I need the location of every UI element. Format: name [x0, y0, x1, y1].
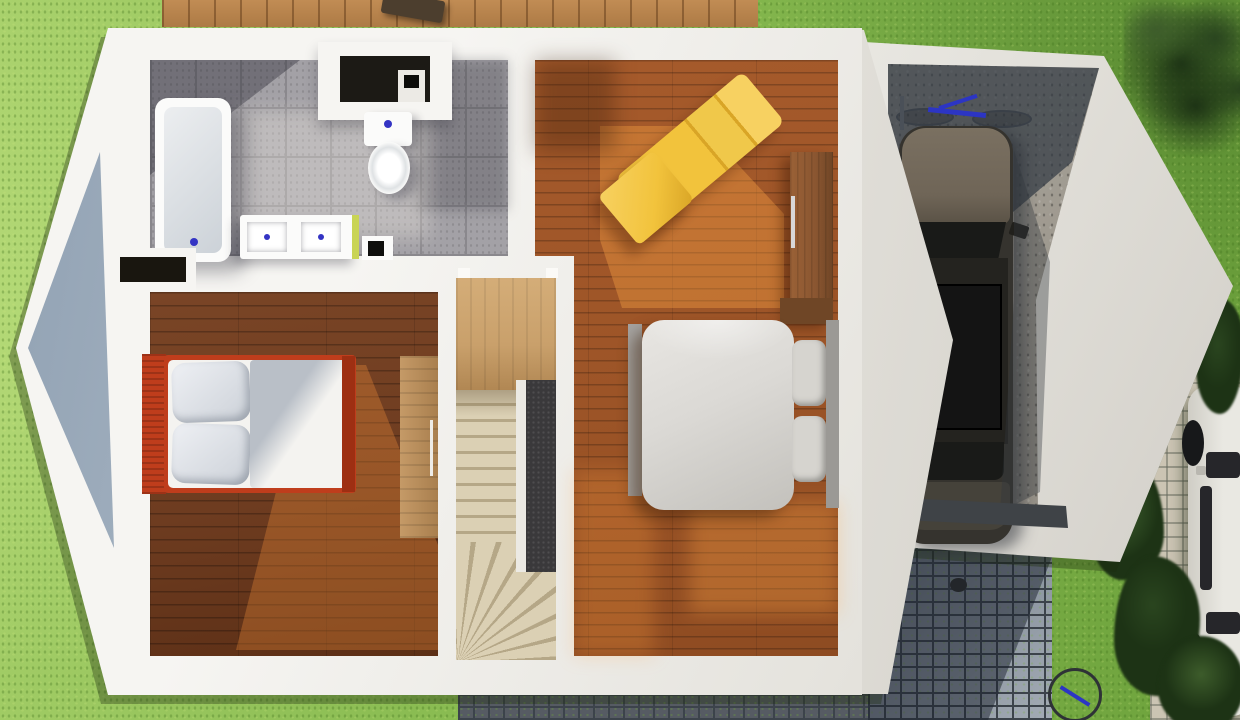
toilet-tank: [364, 112, 412, 146]
driveway-drain: [950, 578, 967, 592]
closet-nook-cavity: [120, 257, 186, 282]
wardrobe-handle: [791, 196, 795, 248]
right-bed-pillow: [792, 340, 826, 406]
stair-railing-panel: [526, 380, 556, 572]
floor-plan-render: [0, 0, 1240, 720]
stair-upper-landing: [456, 278, 556, 390]
parked-car-rear-glass: [1206, 612, 1240, 634]
right-bed-frame: [628, 324, 642, 496]
stair-railing-edge: [516, 380, 526, 572]
garage-car-hood: [902, 128, 1010, 224]
right-bed-mattress: [642, 320, 794, 510]
utility-box-slot: [368, 241, 384, 256]
left-bed-headboard: [142, 354, 166, 494]
parked-car-front-wheel: [1182, 420, 1204, 466]
toilet-flush-button: [384, 120, 392, 128]
vanity-accent-edge: [352, 215, 359, 259]
right-bedroom-sunlight-patch: [574, 470, 654, 656]
parked-car-windshield: [1206, 452, 1240, 478]
left-bed-pillow: [171, 423, 251, 486]
wardrobe: [790, 152, 833, 322]
left-bed-duvet: [250, 360, 348, 488]
right-bedroom-corner-shadow: [535, 60, 615, 152]
bathtub-basin: [164, 107, 222, 253]
toilet-cistern-slot: [404, 75, 419, 88]
sink-left-drain: [264, 234, 270, 240]
left-bed-pillow: [171, 361, 251, 424]
left-bed-footboard: [342, 356, 355, 492]
wood-deck: [162, 0, 758, 27]
right-bed-headboard: [826, 320, 839, 508]
toilet-bowl: [368, 142, 410, 194]
bathtub-drain: [190, 238, 198, 246]
parked-car-door-glass: [1200, 486, 1212, 590]
right-bed-pillow: [792, 416, 826, 482]
stair-door-sill: [546, 268, 558, 278]
stair-door-sill: [458, 268, 470, 278]
garage-bicycle-handlebar: [900, 96, 904, 130]
parked-car-mirror: [1196, 466, 1206, 475]
desk-handle: [430, 420, 433, 476]
sink-right-drain: [318, 234, 324, 240]
right-bedroom-sunlight-patch: [690, 502, 838, 614]
